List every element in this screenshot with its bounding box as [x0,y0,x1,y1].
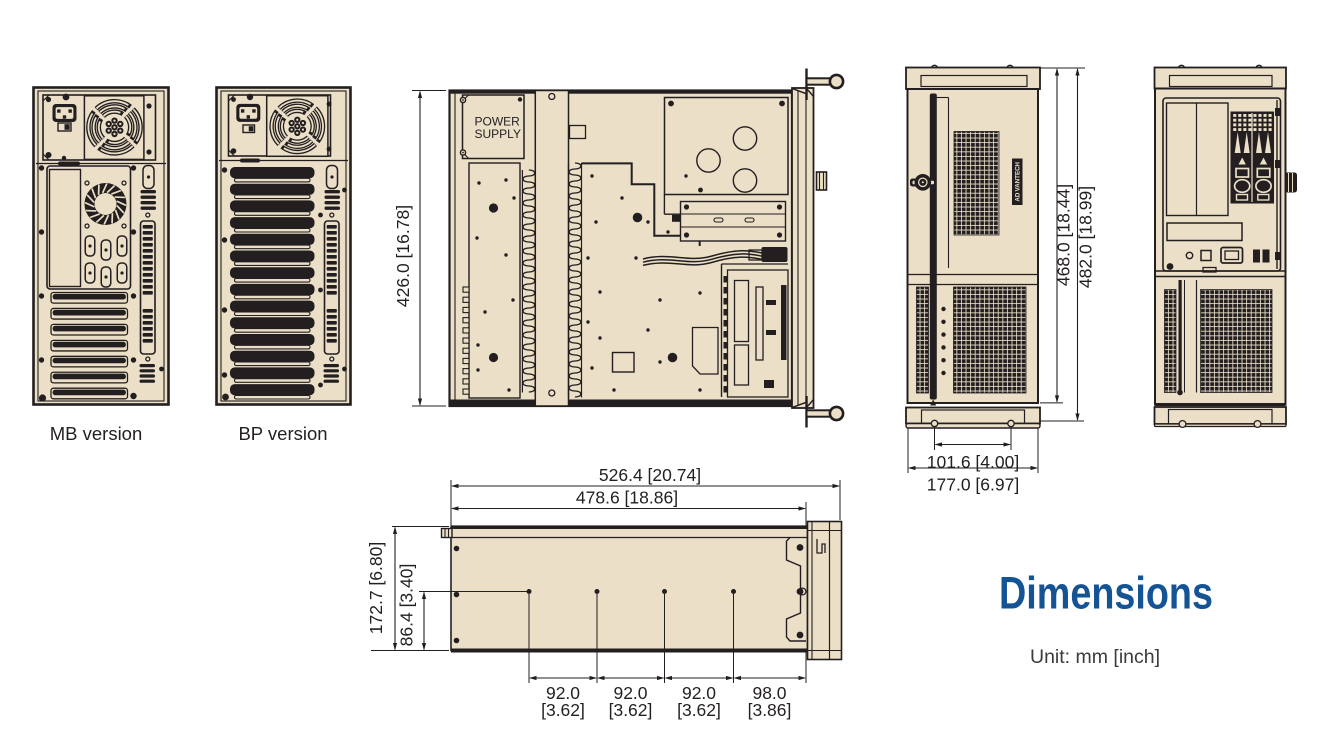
svg-text:MB version: MB version [50,423,143,444]
svg-text:[3.62]: [3.62] [609,700,653,720]
svg-text:[3.62]: [3.62] [677,700,721,720]
svg-text:468.0 [18.44]: 468.0 [18.44] [1054,184,1074,286]
svg-text:Unit: mm [inch]: Unit: mm [inch] [1030,646,1160,668]
svg-text:101.6 [4.00]: 101.6 [4.00] [927,452,1019,472]
svg-text:BP version: BP version [238,423,327,444]
svg-text:SUPPLY: SUPPLY [475,127,521,141]
svg-text:86.4 [3.40]: 86.4 [3.40] [397,564,417,647]
svg-text:[3.62]: [3.62] [541,700,585,720]
svg-text:426.0 [16.78]: 426.0 [16.78] [393,205,413,307]
svg-text:526.4 [20.74]: 526.4 [20.74] [599,465,701,485]
svg-text:[3.86]: [3.86] [748,700,792,720]
svg-text:172.7 [6.80]: 172.7 [6.80] [366,542,386,634]
svg-text:478.6 [18.86]: 478.6 [18.86] [576,488,678,508]
svg-text:AD VANTECH: AD VANTECH [1015,161,1022,201]
svg-text:177.0 [6.97]: 177.0 [6.97] [927,475,1019,495]
svg-text:482.0 [18.99]: 482.0 [18.99] [1076,186,1096,288]
svg-text:Dimensions: Dimensions [999,568,1213,619]
